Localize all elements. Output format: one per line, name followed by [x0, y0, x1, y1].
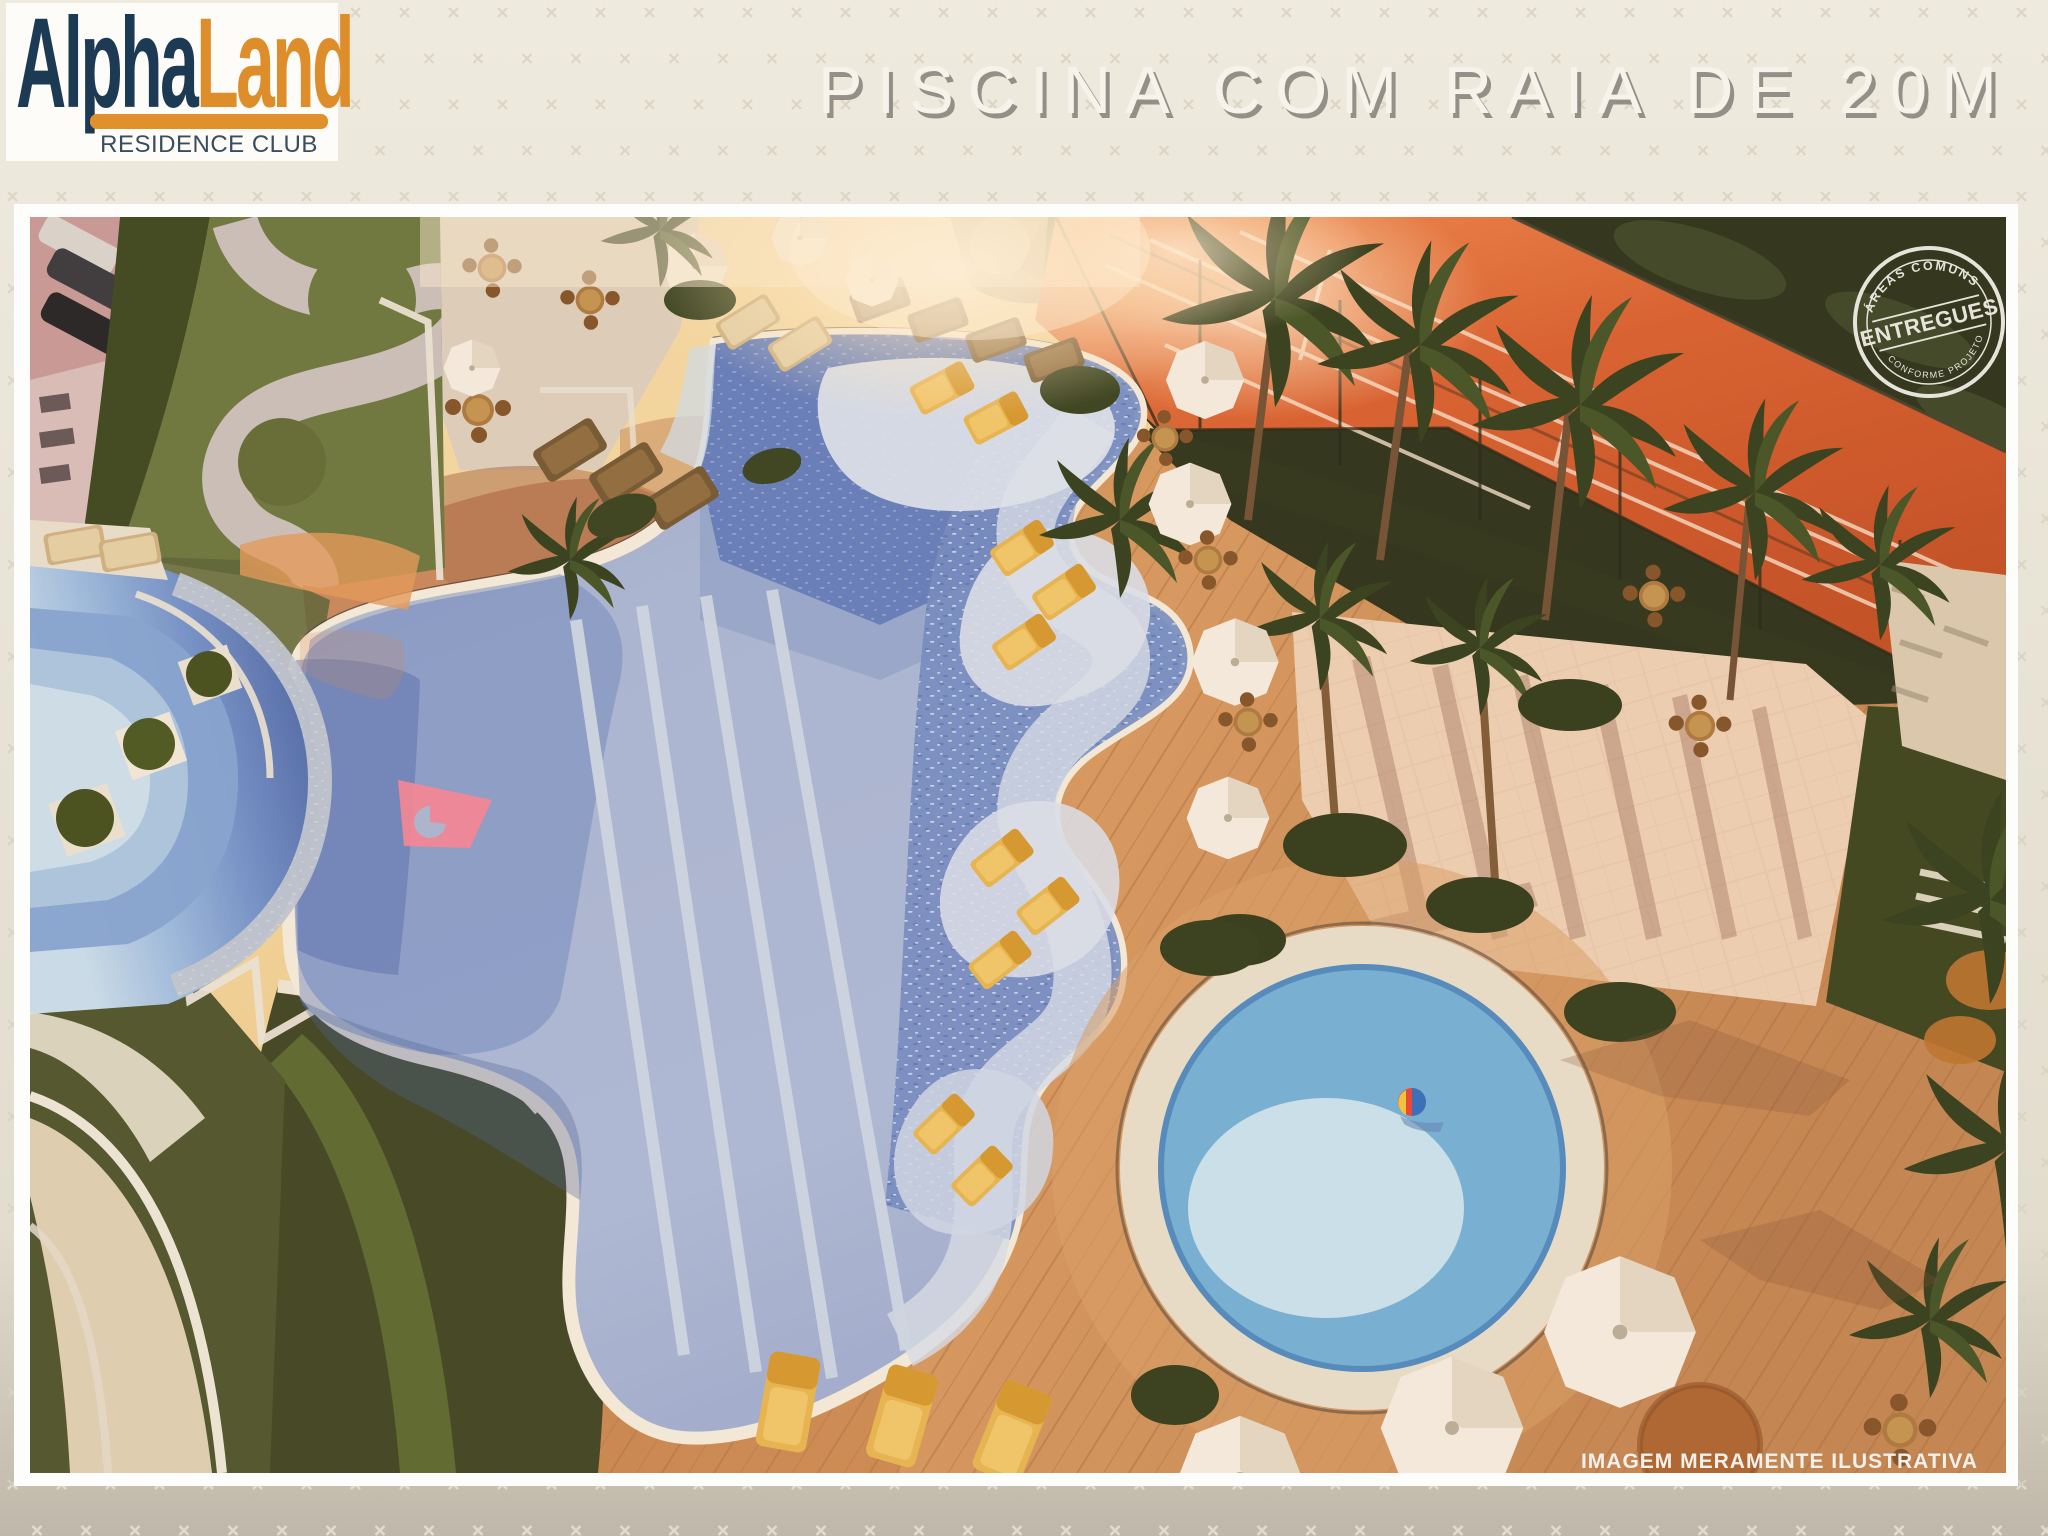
svg-text:IMAGEM MERAMENTE ILUSTRATIVA: IMAGEM MERAMENTE ILUSTRATIVA — [1581, 1450, 1978, 1473]
svg-text:RESIDENCE CLUB: RESIDENCE CLUB — [100, 131, 318, 158]
svg-text:PISCINA COM RAIA DE 20M: PISCINA COM RAIA DE 20M — [818, 53, 2011, 128]
